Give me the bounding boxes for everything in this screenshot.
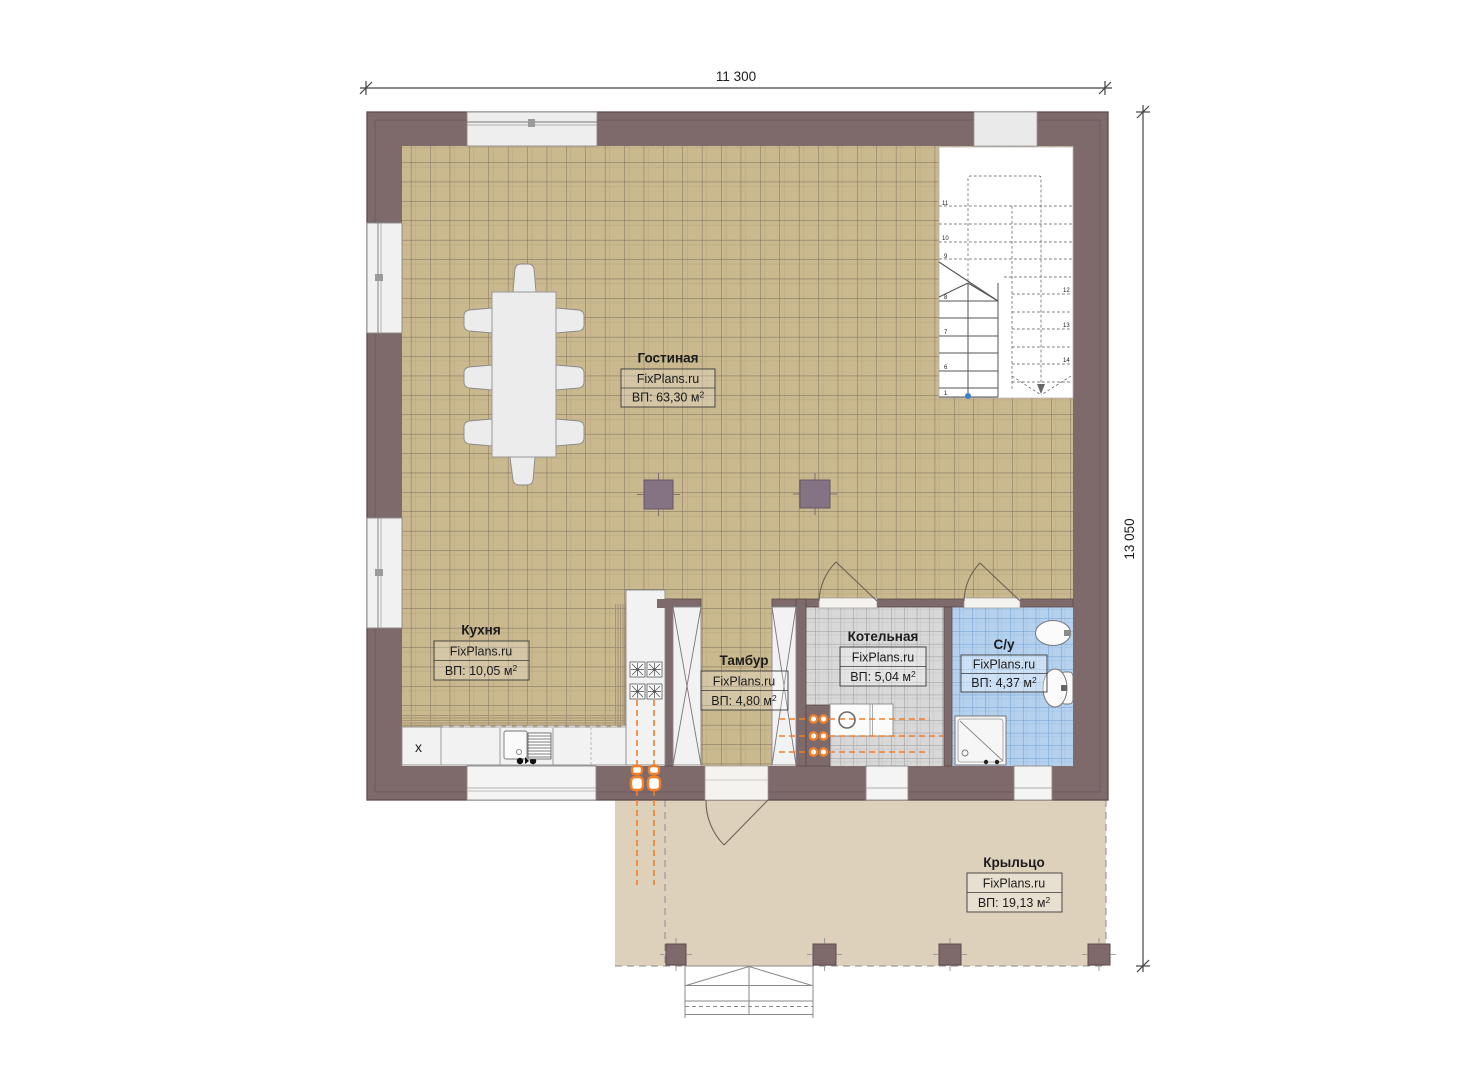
svg-text:12: 12 [1063, 288, 1070, 294]
svg-text:ВП: 63,30 м2: ВП: 63,30 м2 [632, 390, 705, 405]
svg-text:FixPlans.ru: FixPlans.ru [637, 372, 700, 386]
svg-text:ВП: 4,80 м2: ВП: 4,80 м2 [711, 693, 777, 708]
svg-text:FixPlans.ru: FixPlans.ru [973, 658, 1036, 672]
svg-text:FixPlans.ru: FixPlans.ru [713, 675, 776, 689]
svg-text:FixPlans.ru: FixPlans.ru [852, 651, 915, 665]
svg-text:Тамбур: Тамбур [720, 653, 769, 668]
svg-text:FixPlans.ru: FixPlans.ru [450, 645, 513, 659]
svg-text:10: 10 [942, 236, 949, 242]
svg-text:Гостиная: Гостиная [637, 351, 698, 366]
svg-text:14: 14 [1063, 358, 1070, 364]
svg-text:Крыльцо: Крыльцо [983, 855, 1044, 870]
svg-text:11: 11 [942, 201, 949, 207]
svg-text:x: x [415, 739, 422, 755]
svg-text:ВП: 10,05 м2: ВП: 10,05 м2 [445, 663, 518, 678]
svg-text:11 300: 11 300 [716, 69, 756, 84]
svg-text:Котельная: Котельная [848, 629, 919, 644]
svg-text:ВП: 19,13 м2: ВП: 19,13 м2 [978, 895, 1051, 910]
svg-text:13 050: 13 050 [1122, 518, 1137, 559]
svg-text:Кухня: Кухня [461, 623, 500, 638]
svg-text:FixPlans.ru: FixPlans.ru [983, 877, 1046, 891]
svg-text:ВП: 4,37 м2: ВП: 4,37 м2 [971, 675, 1037, 690]
svg-text:ВП: 5,04 м2: ВП: 5,04 м2 [850, 669, 916, 684]
svg-text:С/у: С/у [993, 637, 1015, 652]
svg-text:13: 13 [1063, 323, 1070, 329]
